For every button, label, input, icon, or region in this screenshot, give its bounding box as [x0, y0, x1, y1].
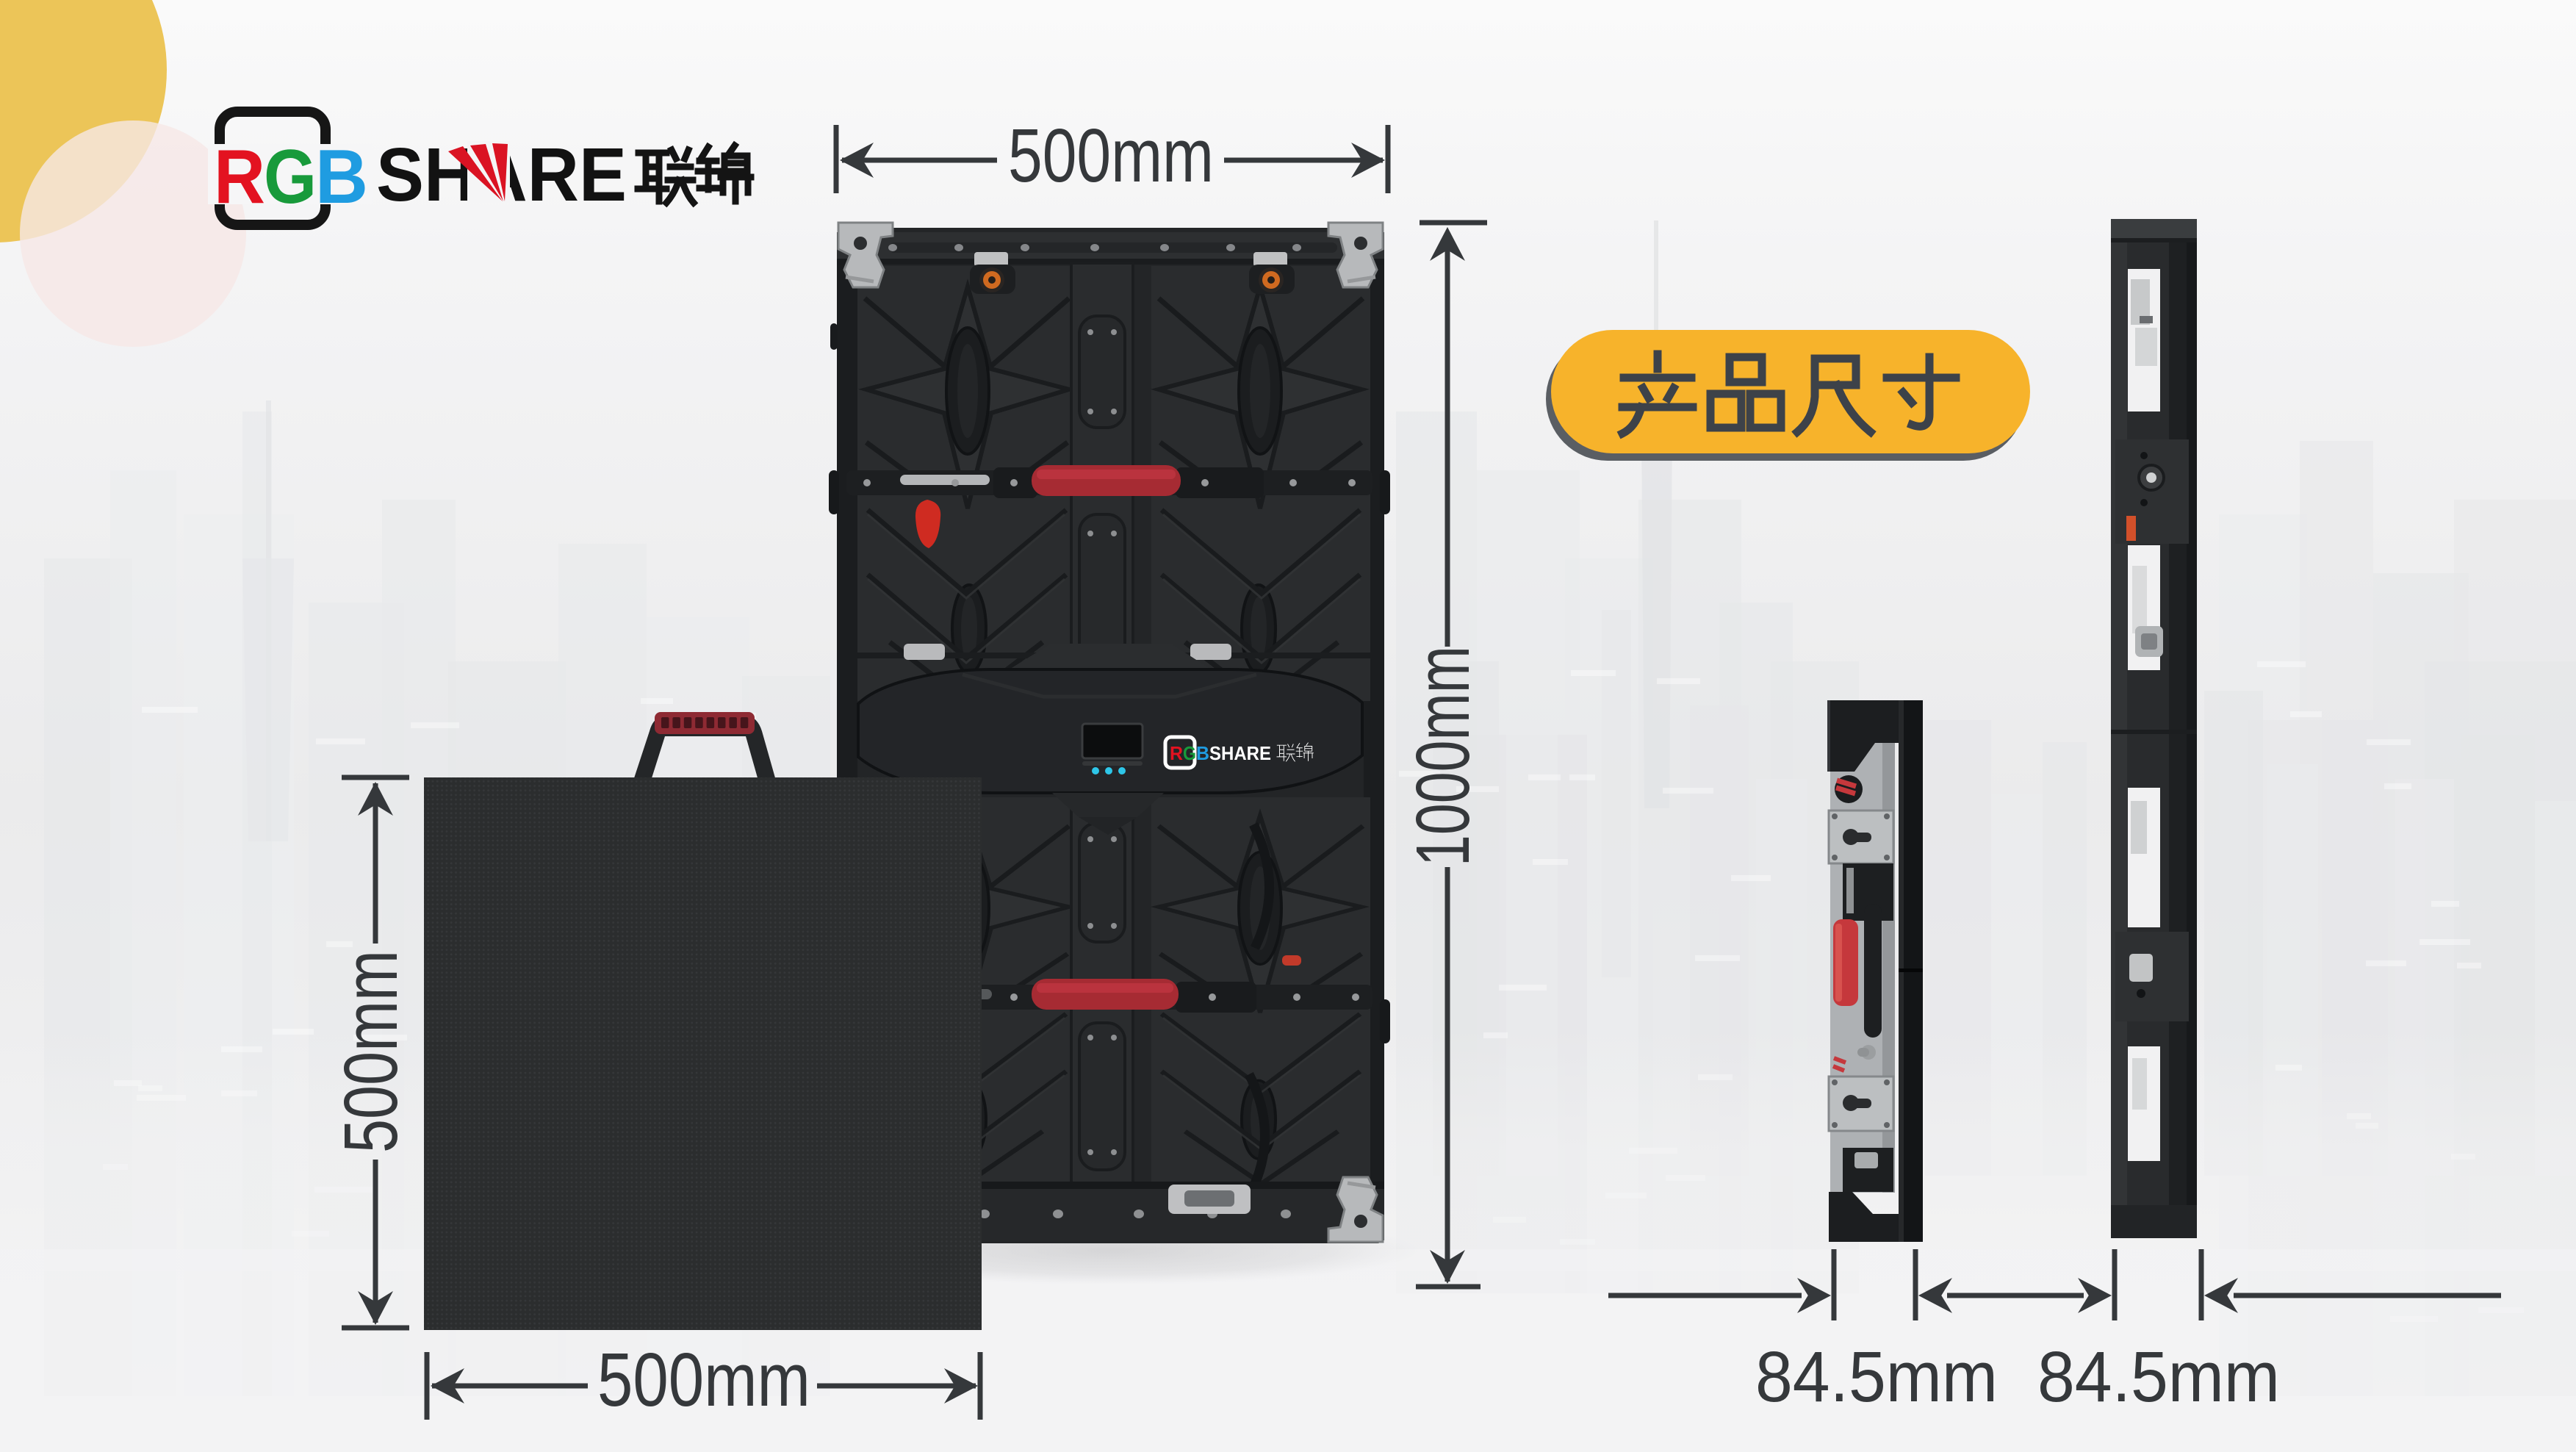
svg-text:G: G [1183, 742, 1196, 764]
svg-text:500mm: 500mm [597, 1337, 810, 1422]
svg-text:1000mm: 1000mm [1400, 646, 1485, 866]
svg-text:500mm: 500mm [1008, 113, 1214, 198]
svg-text:500mm: 500mm [328, 950, 413, 1153]
svg-text:84.5mm: 84.5mm [1755, 1337, 1998, 1417]
svg-text:G: G [264, 134, 317, 220]
svg-text:B: B [1196, 742, 1209, 764]
svg-text:B: B [315, 134, 368, 220]
svg-text:R: R [1170, 742, 1183, 764]
svg-text:84.5mm: 84.5mm [2037, 1337, 2280, 1417]
svg-text:R: R [214, 134, 265, 220]
svg-text:SHARE: SHARE [1209, 742, 1271, 764]
